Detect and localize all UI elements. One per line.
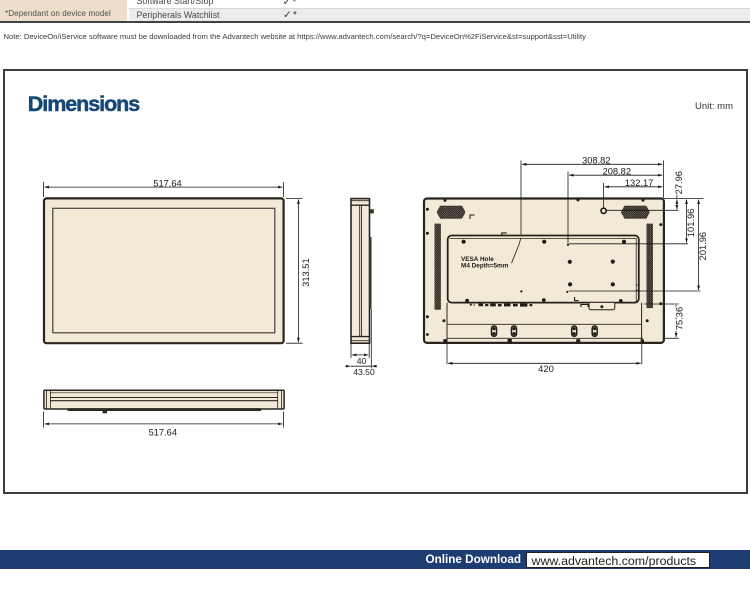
svg-text:420: 420 <box>538 363 554 374</box>
svg-text:517.64: 517.64 <box>149 427 177 437</box>
svg-text:40: 40 <box>357 356 367 366</box>
svg-text:27.96: 27.96 <box>674 171 684 194</box>
svg-text:101.96: 101.96 <box>686 209 696 237</box>
svg-text:308.82: 308.82 <box>582 155 610 165</box>
svg-text:M4 Depth=5mm: M4 Depth=5mm <box>461 262 509 269</box>
svg-text:75.36: 75.36 <box>675 307 685 330</box>
svg-text:313.51: 313.51 <box>301 258 311 286</box>
svg-text:43.50: 43.50 <box>353 367 375 377</box>
svg-text:201.96: 201.96 <box>698 232 708 260</box>
